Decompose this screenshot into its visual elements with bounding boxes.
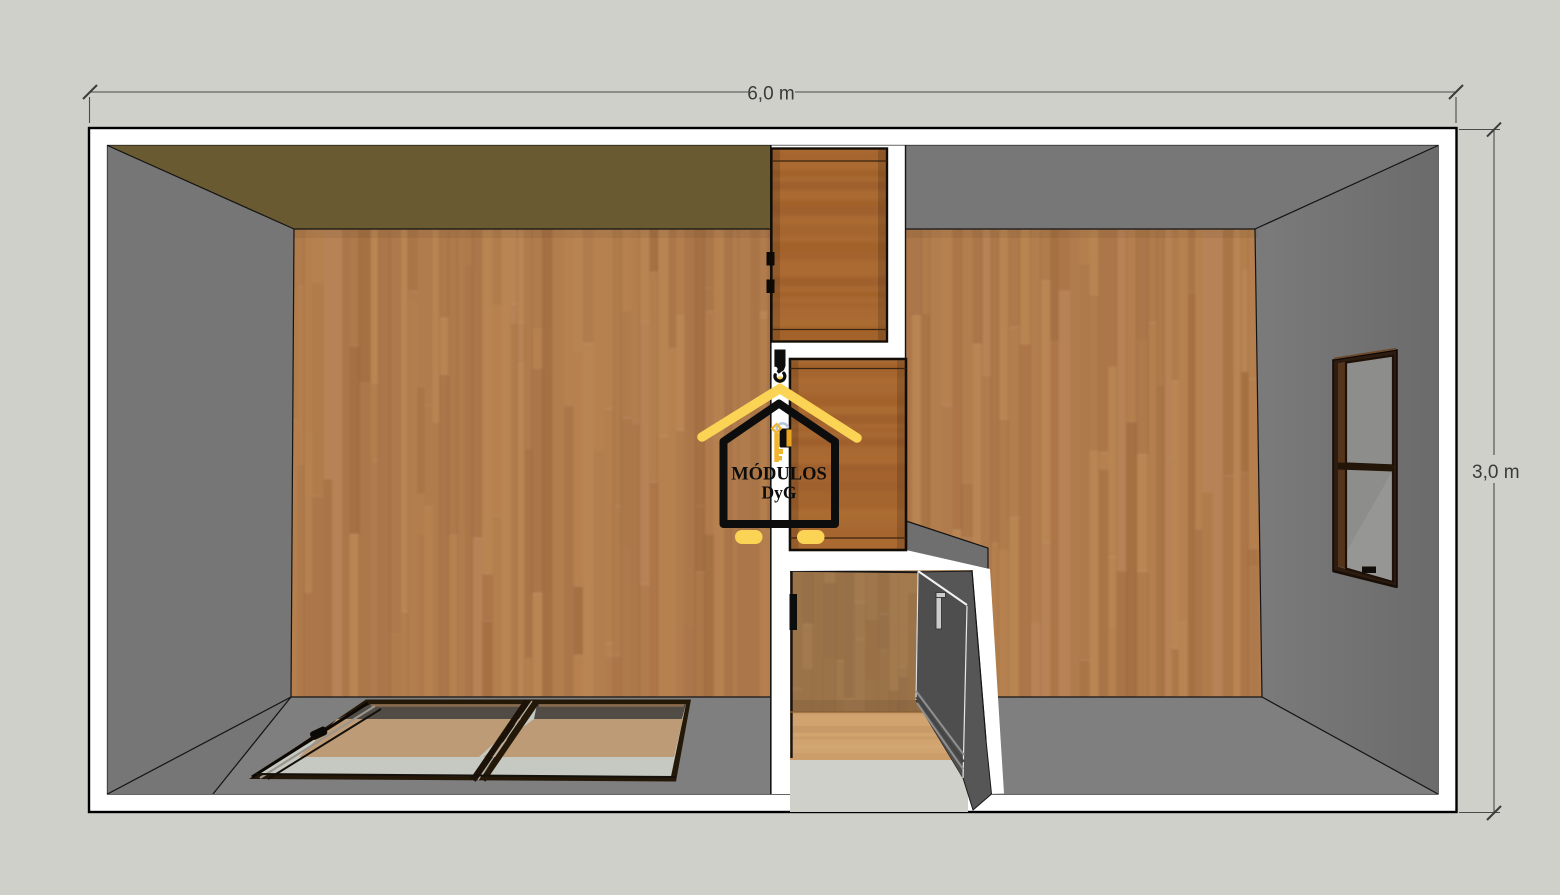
svg-text:MÓDULOS: MÓDULOS: [731, 463, 827, 485]
svg-text:6,0 m: 6,0 m: [747, 84, 795, 105]
svg-text:DyG: DyG: [762, 483, 797, 503]
svg-text:3,0 m: 3,0 m: [1472, 462, 1520, 483]
